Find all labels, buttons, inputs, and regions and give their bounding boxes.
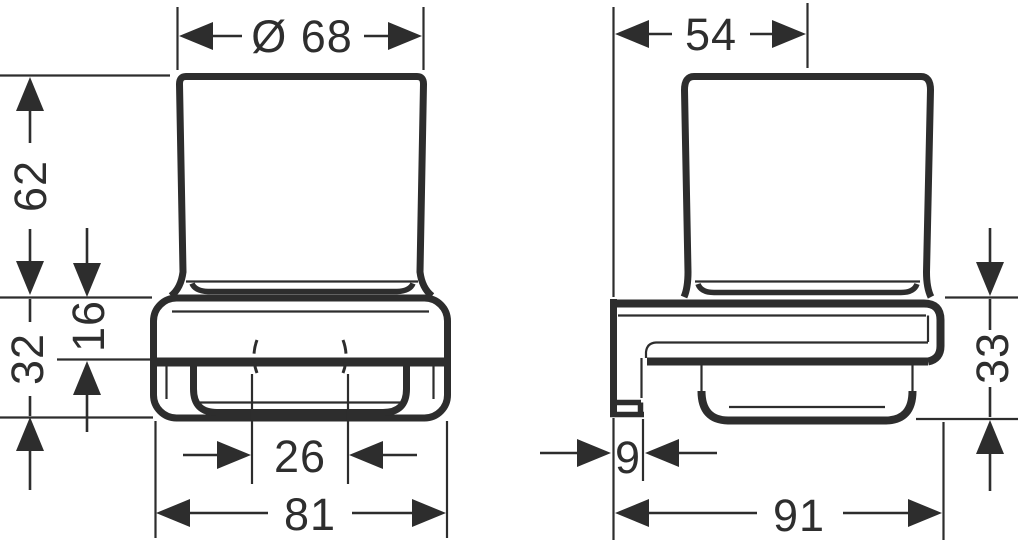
drain-hole-hidden-arc-left (254, 340, 257, 373)
arrowhead-right (217, 441, 251, 469)
holder-side-top-arm (610, 304, 941, 362)
front-view: Ø 68 62 32 16 (0, 7, 448, 540)
side-view: 54 33 9 (540, 3, 1018, 541)
arrowhead-left (156, 499, 190, 527)
arrowhead-right (577, 439, 611, 467)
holder-side (610, 299, 941, 421)
holder-side-flange-top-line (646, 343, 928, 359)
arrowhead-right (908, 499, 942, 527)
dim-label-holder-rim: 16 (63, 300, 114, 352)
arrowhead-right (772, 20, 806, 48)
arrowhead-left (615, 499, 649, 527)
dim-label-glass-diameter: Ø 68 (251, 11, 353, 62)
dim-wall-to-axis: 54 (614, 3, 808, 297)
arrowhead-down (16, 261, 44, 295)
dim-drain-hole: 26 (183, 374, 417, 484)
dim-wall-plate-depth: 9 (540, 418, 717, 540)
arrowhead-right (388, 22, 422, 50)
glass-side (684, 77, 931, 298)
arrowhead-left (645, 439, 679, 467)
dim-label-glass-height: 62 (5, 160, 56, 212)
dim-label-drain-hole: 26 (274, 431, 326, 482)
arrowhead-up (976, 420, 1004, 454)
holder-front (154, 298, 448, 418)
technical-drawing-canvas: Ø 68 62 32 16 (0, 0, 1024, 547)
bowl-bottom (702, 391, 913, 421)
arrowhead-up (73, 361, 101, 395)
holder-front-opening (194, 365, 407, 413)
dim-label-overall-depth: 91 (773, 490, 825, 541)
arrowhead-down (73, 263, 101, 297)
dim-label-holder-width: 81 (284, 489, 336, 540)
tumbler-holder-dimension-drawing: Ø 68 62 32 16 (0, 0, 1024, 547)
glass-side-outline (684, 77, 931, 298)
dim-holder-rim: 16 (57, 228, 152, 432)
dim-label-holder-height: 32 (2, 333, 53, 385)
glass-side-bottom-edge (698, 284, 917, 293)
dim-label-wall-plate-depth: 9 (615, 432, 641, 483)
arrowhead-up (16, 77, 44, 111)
glass-front-outline (171, 77, 432, 297)
arrowhead-up (16, 417, 44, 451)
arrowhead-right (412, 499, 446, 527)
arrowhead-left (179, 22, 213, 50)
dim-label-wall-to-axis: 54 (685, 9, 737, 60)
arrowhead-left (349, 441, 383, 469)
dim-label-holder-front-height: 33 (967, 332, 1018, 384)
glass-front-bottom-edge (192, 284, 413, 292)
dim-overall-depth: 91 (615, 422, 944, 541)
arrowhead-down (976, 262, 1004, 296)
dim-glass-diameter: Ø 68 (178, 7, 424, 70)
drain-hole-hidden-arc-right (343, 340, 346, 373)
arrowhead-left (615, 20, 649, 48)
glass-front (171, 77, 432, 297)
